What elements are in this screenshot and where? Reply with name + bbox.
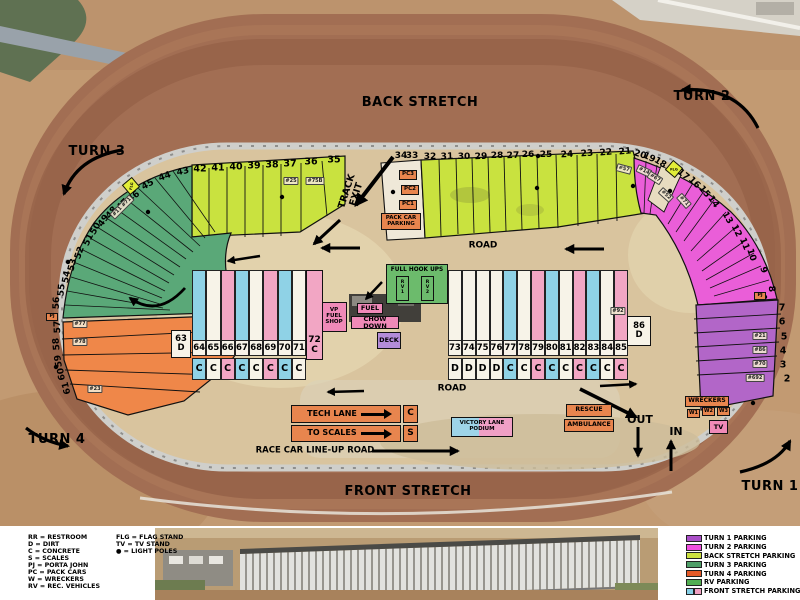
wrecker-2: W2 bbox=[702, 407, 715, 416]
porta-john-right: PJ bbox=[754, 292, 766, 300]
ambulance-station: AMBULANCE bbox=[564, 419, 614, 432]
car-number-tag: #23 bbox=[87, 385, 102, 393]
paddock-surface-letter: D bbox=[448, 358, 462, 380]
parking-slot-36: 36 bbox=[304, 157, 317, 168]
parking-slot-2: 2 bbox=[784, 374, 791, 385]
parking-slot-30: 30 bbox=[458, 152, 471, 162]
paddock-surface-letter: C bbox=[235, 358, 249, 380]
legend-abbrev-item: D = DIRT bbox=[28, 541, 100, 548]
turn4-label: TURN 4 bbox=[29, 433, 86, 447]
paddock-surface-letter: C bbox=[503, 358, 517, 380]
paddock-surface-letter: C bbox=[573, 358, 587, 380]
pack-car-parking-sign: PACK CAR PARKING bbox=[381, 213, 421, 230]
parking-slot-57: 57 bbox=[53, 321, 63, 334]
paddock-column-body bbox=[292, 270, 306, 341]
spot-72-concrete: 72C bbox=[306, 270, 323, 360]
paddock-column-body bbox=[545, 270, 559, 341]
turn2-label: TURN 2 bbox=[674, 90, 731, 104]
car-number-tag: #78 bbox=[72, 338, 87, 346]
paddock-column-body bbox=[263, 270, 277, 341]
wrecker-3: W3 bbox=[717, 407, 730, 416]
paddock-surface-letter: C bbox=[586, 358, 600, 380]
legend-parking-colors: TURN 1 PARKINGTURN 2 PARKINGBACK STRETCH… bbox=[686, 534, 800, 596]
legend-color-row: TURN 3 PARKING bbox=[686, 560, 800, 569]
legend-abbrev-item: PC = PACK CARS bbox=[28, 569, 100, 576]
parking-slot-54: 54 bbox=[61, 270, 73, 284]
tech-lane-sign: TECH LANE bbox=[291, 405, 401, 423]
paddock-surface-letter: C bbox=[263, 358, 277, 380]
paddock-column-body bbox=[490, 270, 504, 341]
parking-slot-58: 58 bbox=[51, 337, 62, 350]
paddock-column-80: 80C bbox=[545, 270, 559, 382]
paddock-column-number: 84 bbox=[600, 341, 614, 356]
paddock-column-number: 70 bbox=[278, 341, 292, 356]
paddock-column-number: 68 bbox=[249, 341, 263, 356]
legend-color-row: TURN 1 PARKING bbox=[686, 534, 800, 543]
paddock-column-76: 76D bbox=[490, 270, 504, 382]
victory-lane-podium: VICTORY LANE PODIUM bbox=[451, 417, 513, 437]
paddock-column-84: 84C bbox=[600, 270, 614, 382]
scales-marker: S bbox=[403, 425, 418, 442]
legend-color-label: TURN 3 PARKING bbox=[704, 561, 767, 569]
legend-color-label: TURN 1 PARKING bbox=[704, 534, 767, 542]
legend-color-swatch bbox=[686, 561, 702, 568]
paddock-column-body bbox=[462, 270, 476, 341]
fuel-stand: FUEL bbox=[357, 303, 383, 314]
road-mid-label: ROAD bbox=[438, 384, 467, 393]
deck: DECK bbox=[377, 332, 401, 349]
paddock-column-body bbox=[206, 270, 220, 341]
paddock-column-number: 78 bbox=[517, 341, 531, 356]
car-number-tag: #75B bbox=[306, 177, 325, 185]
paddock-surface-letter: C bbox=[600, 358, 614, 380]
legend-color-swatch bbox=[686, 544, 702, 551]
car-number-tag: #70 bbox=[752, 360, 767, 368]
legend-abbrev-item: W = WRECKERS bbox=[28, 576, 100, 583]
legend-color-row: TURN 2 PARKING bbox=[686, 543, 800, 552]
pack-car-stall-2: PC2 bbox=[401, 185, 419, 195]
paddock-column-body bbox=[448, 270, 462, 341]
paddock-column-number: 85 bbox=[614, 341, 628, 356]
paddock-surface-letter: C bbox=[278, 358, 292, 380]
tech-lane-concrete-marker: C bbox=[403, 405, 418, 423]
paddock-column-body bbox=[573, 270, 587, 341]
paddock-surface-letter: C bbox=[292, 358, 306, 380]
paddock-column-body bbox=[221, 270, 235, 341]
paddock-column-body bbox=[531, 270, 545, 341]
car-number-tag: #86 bbox=[752, 346, 767, 354]
rv-site-1: RV1 bbox=[396, 276, 409, 301]
parking-slot-35: 35 bbox=[327, 155, 340, 166]
paddock-column-number: 83 bbox=[586, 341, 600, 356]
parking-slot-32: 32 bbox=[424, 152, 437, 162]
legend-color-swatch bbox=[686, 570, 702, 577]
grandstand-photo bbox=[155, 528, 658, 600]
lineup-road-label: RACE CAR LINE-UP ROAD bbox=[256, 447, 375, 456]
paddock-surface-letter: C bbox=[221, 358, 235, 380]
parking-slot-41: 41 bbox=[211, 163, 224, 174]
legend-color-row: BACK STRETCH PARKING bbox=[686, 552, 800, 561]
wrecker-1: W1 bbox=[687, 409, 700, 418]
parking-slot-59: 59 bbox=[53, 354, 65, 368]
paddock-surface-letter: C bbox=[206, 358, 220, 380]
legend-color-row: RV PARKING bbox=[686, 578, 800, 587]
parking-slot-42: 42 bbox=[193, 164, 206, 175]
parking-slot-26: 26 bbox=[522, 150, 535, 160]
rescue-station: RESCUE bbox=[566, 404, 612, 417]
parking-slot-56: 56 bbox=[52, 297, 62, 310]
paddock-column-83: 83C bbox=[586, 270, 600, 382]
paddock-column-body bbox=[614, 270, 628, 341]
paddock-column-67: 67C bbox=[235, 270, 249, 382]
paddock-column-85: 85C bbox=[614, 270, 628, 382]
paddock-surface-letter: C bbox=[192, 358, 206, 380]
paddock-column-number: 67 bbox=[235, 341, 249, 356]
paddock-column-66: 66C bbox=[221, 270, 235, 382]
paddock-surface-letter: C bbox=[517, 358, 531, 380]
paddock-column-79: 79C bbox=[531, 270, 545, 382]
paddock-column-body bbox=[503, 270, 517, 341]
wreckers-area: WRECKERS bbox=[685, 396, 729, 407]
paddock-surface-letter: C bbox=[614, 358, 628, 380]
legend-abbrev-item: RR = RESTROOM bbox=[28, 534, 100, 541]
vp-fuel-shop: VP FUEL SHOP bbox=[321, 302, 347, 332]
paddock-column-body bbox=[192, 270, 206, 341]
legend-color-label: FRONT STRETCH PARKING bbox=[704, 587, 800, 595]
paddock-column-number: 79 bbox=[531, 341, 545, 356]
rv-site-2: RV2 bbox=[421, 276, 434, 301]
paddock-column-69: 69C bbox=[263, 270, 277, 382]
parking-slot-38: 38 bbox=[265, 160, 278, 171]
legend-abbrev-item: ● = LIGHT POLES bbox=[116, 548, 183, 555]
paddock-surface-letter: C bbox=[249, 358, 263, 380]
paddock-column-number: 76 bbox=[490, 341, 504, 356]
paddock-column-body bbox=[586, 270, 600, 341]
paddock-column-number: 80 bbox=[545, 341, 559, 356]
parking-slot-31: 31 bbox=[441, 152, 454, 162]
paddock-column-74: 74D bbox=[462, 270, 476, 382]
paddock-column-body bbox=[235, 270, 249, 341]
legend-color-swatch bbox=[686, 579, 702, 586]
paddock-column-body bbox=[278, 270, 292, 341]
paddock-column-78: 78C bbox=[517, 270, 531, 382]
paddock-column-number: 73 bbox=[448, 341, 462, 356]
out-label: OUT bbox=[627, 414, 653, 426]
legend-abbrev-item: S = SCALES bbox=[28, 555, 100, 562]
paddock-column-body bbox=[476, 270, 490, 341]
parking-slot-5: 5 bbox=[781, 332, 788, 343]
tv-stand: TV bbox=[709, 420, 728, 434]
legend-abbreviations: RR = RESTROOMD = DIRTC = CONCRETES = SCA… bbox=[28, 534, 183, 590]
parking-slot-37: 37 bbox=[283, 159, 296, 170]
legend-abbrev-col2: FLG = FLAG STANDTV = TV STAND● = LIGHT P… bbox=[116, 534, 183, 590]
parking-slot-55: 55 bbox=[56, 283, 67, 297]
paddock-column-number: 74 bbox=[462, 341, 476, 356]
tech-lane-label: TECH LANE bbox=[307, 410, 357, 418]
chow-down-concessions: CHOW DOWN bbox=[351, 316, 399, 329]
paddock-column-81: 81C bbox=[559, 270, 573, 382]
legend-color-label: BACK STRETCH PARKING bbox=[704, 552, 795, 560]
parking-slot-7: 7 bbox=[779, 303, 786, 314]
back-stretch-label: BACK STRETCH bbox=[362, 96, 479, 110]
in-label: IN bbox=[669, 426, 682, 438]
parking-slot-28: 28 bbox=[491, 151, 504, 161]
legend-abbrev-item: PJ = PORTA JOHN bbox=[28, 562, 100, 569]
paddock-column-number: 65 bbox=[206, 341, 220, 356]
paddock-column-71: 71C bbox=[292, 270, 306, 382]
parking-slot-29: 29 bbox=[475, 152, 488, 162]
tech-lane-arrow-icon bbox=[361, 413, 385, 416]
paddock-surface-letter: C bbox=[559, 358, 573, 380]
front-stretch-label: FRONT STRETCH bbox=[344, 485, 471, 499]
paddock-column-body bbox=[559, 270, 573, 341]
paddock-column-number: 75 bbox=[476, 341, 490, 356]
pack-car-stall-1: PC1 bbox=[399, 200, 417, 210]
paddock-right-columns: 73D74D75D76D77C78C79C80C81C82C83C84C85C bbox=[448, 270, 623, 382]
paddock-column-body bbox=[600, 270, 614, 341]
paddock-surface-letter: D bbox=[490, 358, 504, 380]
turn1-label: TURN 1 bbox=[742, 480, 799, 494]
legend-color-label: TURN 4 PARKING bbox=[704, 570, 767, 578]
race-track-parking-map: BACK STRETCH TURN 2 TURN 3 TURN 4 TURN 1… bbox=[0, 0, 800, 600]
legend-abbrev-item: C = CONCRETE bbox=[28, 548, 100, 555]
paddock-column-68: 68C bbox=[249, 270, 263, 382]
parking-slot-27: 27 bbox=[507, 151, 520, 161]
legend-color-swatch bbox=[686, 588, 694, 595]
legend-color-label: TURN 2 PARKING bbox=[704, 543, 767, 551]
to-scales-arrow-icon bbox=[361, 432, 385, 435]
road-top-label: ROAD bbox=[469, 241, 498, 250]
to-scales-sign: TO SCALES bbox=[291, 425, 401, 442]
parking-slot-3: 3 bbox=[780, 360, 787, 371]
legend-abbrev-item: RV = REC. VEHICLES bbox=[28, 583, 100, 590]
paddock-column-number: 81 bbox=[559, 341, 573, 356]
car-number-tag: #21 bbox=[752, 332, 767, 340]
paddock-column-64: 64C bbox=[192, 270, 206, 382]
legend-color-swatch bbox=[686, 535, 702, 542]
to-scales-label: TO SCALES bbox=[307, 429, 356, 437]
parking-slot-4: 4 bbox=[780, 346, 787, 357]
parking-slot-25: 25 bbox=[540, 150, 553, 160]
car-number-tag: #92 bbox=[610, 307, 625, 315]
legend-color-label: RV PARKING bbox=[704, 578, 749, 586]
legend-color-row: TURN 4 PARKING bbox=[686, 569, 800, 578]
pack-car-stall-3: PC3 bbox=[399, 170, 417, 180]
parking-slot-39: 39 bbox=[247, 161, 260, 172]
paddock-column-75: 75D bbox=[476, 270, 490, 382]
parking-slot-33: 33 bbox=[406, 151, 419, 161]
spot-63-dirt: 63D bbox=[171, 330, 191, 358]
paddock-surface-letter: D bbox=[462, 358, 476, 380]
parking-slot-40: 40 bbox=[229, 162, 242, 173]
paddock-surface-letter: C bbox=[545, 358, 559, 380]
legend-abbrev-item: TV = TV STAND bbox=[116, 541, 183, 548]
paddock-surface-letter: D bbox=[476, 358, 490, 380]
paddock-column-number: 77 bbox=[503, 341, 517, 356]
legend-color-swatch bbox=[694, 588, 702, 595]
turn3-label: TURN 3 bbox=[69, 145, 126, 159]
paddock-column-number: 69 bbox=[263, 341, 277, 356]
parking-slot-60: 60 bbox=[56, 367, 68, 381]
parking-slot-22: 22 bbox=[599, 147, 612, 158]
paddock-column-number: 71 bbox=[292, 341, 306, 356]
paddock-surface-letter: C bbox=[531, 358, 545, 380]
parking-slot-21: 21 bbox=[618, 146, 632, 157]
paddock-column-77: 77C bbox=[503, 270, 517, 382]
car-number-tag: #692 bbox=[746, 374, 765, 382]
legend-color-row: FRONT STRETCH PARKING bbox=[686, 587, 800, 596]
paddock-column-number: 64 bbox=[192, 341, 206, 356]
parking-slot-23: 23 bbox=[580, 149, 593, 160]
car-number-tag: #77 bbox=[72, 320, 87, 328]
paddock-column-number: 66 bbox=[221, 341, 235, 356]
paddock-column-65: 65C bbox=[206, 270, 220, 382]
paddock-column-82: 82C bbox=[573, 270, 587, 382]
parking-slot-24: 24 bbox=[560, 150, 573, 161]
spot-86-dirt: 86D bbox=[627, 316, 651, 346]
parking-slot-6: 6 bbox=[779, 317, 786, 328]
paddock-left-columns: 64C65C66C67C68C69C70C71C bbox=[192, 270, 306, 382]
paddock-column-70: 70C bbox=[278, 270, 292, 382]
paddock-column-73: 73D bbox=[448, 270, 462, 382]
legend-abbrev-col1: RR = RESTROOMD = DIRTC = CONCRETES = SCA… bbox=[28, 534, 100, 590]
car-number-tag: #25 bbox=[283, 177, 298, 185]
paddock-column-number: 82 bbox=[573, 341, 587, 356]
legend-color-swatch bbox=[686, 552, 702, 559]
legend-abbrev-item: FLG = FLAG STAND bbox=[116, 534, 183, 541]
paddock-column-body bbox=[249, 270, 263, 341]
paddock-column-body bbox=[517, 270, 531, 341]
